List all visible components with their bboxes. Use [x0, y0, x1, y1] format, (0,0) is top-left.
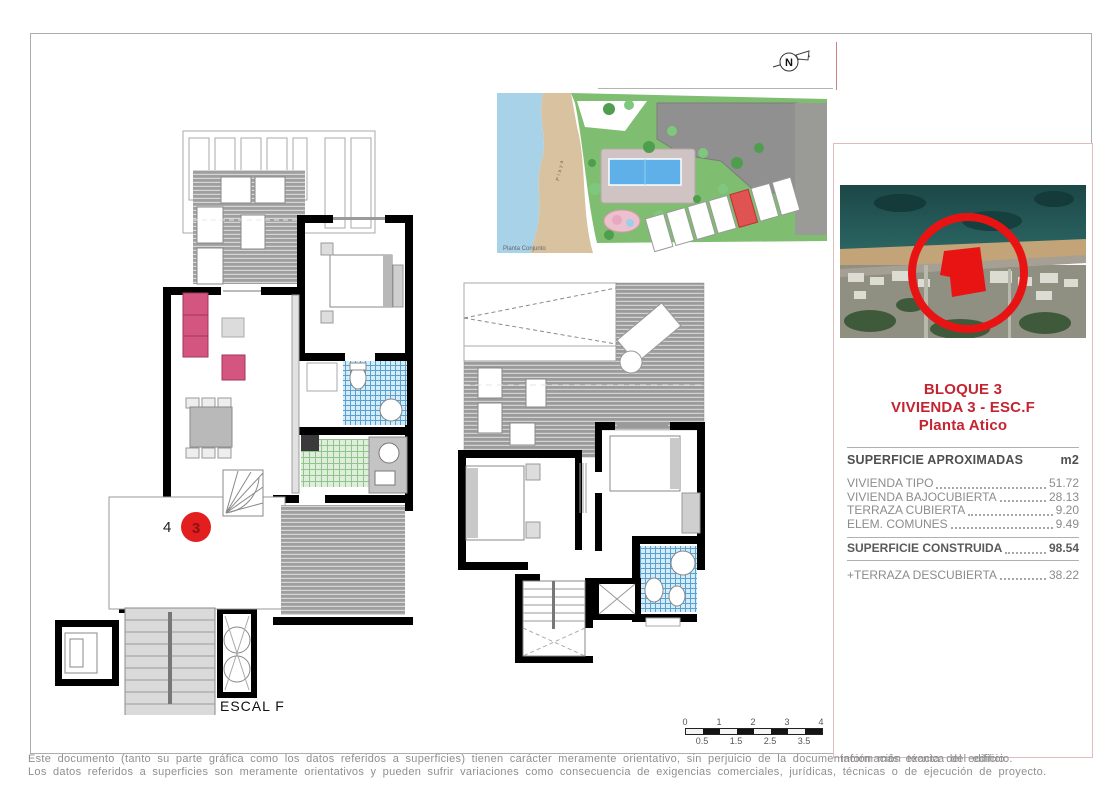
scale-tick: 1.5: [730, 736, 743, 746]
area-row-value: 28.13: [1049, 491, 1079, 505]
site-pond: [604, 210, 640, 232]
site-east-strip: [795, 103, 827, 235]
scale-bar-segments: [685, 728, 823, 735]
attic-pergola: [464, 283, 616, 361]
north-arrow-icon: N: [772, 45, 812, 79]
attic-bedroom-right: [610, 436, 700, 533]
scale-tick: 0.5: [696, 736, 709, 746]
area-row-value: 9.20: [1056, 504, 1079, 518]
scale-tick: 3: [784, 717, 789, 727]
area-extra-row: +TERRAZA DESCUBIERTA 38.22: [847, 569, 1079, 583]
area-row: TERRAZA CUBIERTA 9.20: [847, 504, 1079, 518]
armchair: [222, 355, 245, 380]
stair-label: ESCAL F: [220, 698, 285, 714]
dining-table: [186, 398, 232, 458]
area-extra-label: +TERRAZA DESCUBIERTA: [847, 569, 997, 583]
aerial-photo: [840, 185, 1086, 338]
title-bloque: BLOQUE 3: [834, 381, 1092, 399]
stairwell: [125, 608, 215, 715]
bedroom-main: [321, 243, 403, 323]
attic-bedroom-left: [466, 464, 540, 540]
attic-elevator: [593, 578, 641, 620]
bathroom-main: [307, 361, 407, 425]
scale-tick: 1: [716, 717, 721, 727]
title-planta: Planta Atico: [834, 417, 1092, 435]
disclaimer-line-1: Este documento (tanto su parte gráfica c…: [28, 753, 1090, 766]
attic-stairs: [523, 581, 585, 656]
disclaimer-overlay-text: información técnica del edificio.: [841, 753, 1013, 766]
site-plan-top-rule: [598, 88, 833, 89]
disclaimer-line-2: Los datos referidos a superficies son me…: [28, 766, 1090, 779]
area-extra-value: 38.22: [1049, 569, 1079, 583]
scale-tick: 2.5: [764, 736, 777, 746]
sofa: [183, 293, 208, 357]
scale-tick: 0: [682, 717, 687, 727]
north-letter: N: [785, 57, 793, 69]
areas-header: SUPERFICIE APROXIMADAS m2: [847, 448, 1079, 477]
area-row-label: VIVIENDA TIPO: [847, 477, 933, 491]
scale-tick: 2: [750, 717, 755, 727]
site-plan: Playa: [497, 93, 835, 253]
info-panel: BLOQUE 3 VIVIENDA 3 - ESC.F Planta Atico…: [833, 143, 1093, 758]
unit-marker-number: 3: [192, 520, 200, 537]
site-plan-caption: Planta Conjunto: [503, 246, 546, 252]
title-vivienda: VIVIENDA 3 - ESC.F: [834, 399, 1092, 417]
plan-sheet: 4 3 ESCAL: [0, 0, 1112, 786]
area-row: VIVIENDA TIPO 51.72: [847, 477, 1079, 491]
coffee-table: [222, 318, 244, 337]
area-row-value: 51.72: [1049, 477, 1079, 491]
area-row-label: TERRAZA CUBIERTA: [847, 504, 965, 518]
spiral-stair: [223, 470, 263, 516]
terrace-door: [223, 290, 261, 292]
red-margin-line: [836, 42, 837, 90]
area-row: VIVIENDA BAJOCUBIERTA 28.13: [847, 491, 1079, 505]
floor-plan-main: 4 3 ESCAL: [45, 115, 420, 715]
areas-header-label: SUPERFICIE APROXIMADAS: [847, 453, 1023, 467]
elevator-right: [223, 614, 251, 692]
upper-terrace: [193, 170, 305, 284]
bedroom-window: [333, 217, 385, 220]
area-total-row: SUPERFICIE CONSTRUIDA 98.54: [847, 542, 1079, 556]
site-sea: [497, 93, 544, 253]
area-total-value: 98.54: [1049, 542, 1079, 556]
area-row-label: ELEM. COMUNES: [847, 518, 948, 532]
site-pool: [601, 149, 695, 203]
plan-title-block: BLOQUE 3 VIVIENDA 3 - ESC.F Planta Atico: [834, 381, 1092, 435]
kitchen: [301, 435, 407, 493]
disclaimer-text-2: Los datos referidos a superficies son me…: [28, 766, 1046, 778]
disclaimer: Este documento (tanto su parte gráfica c…: [28, 753, 1090, 779]
area-row-value: 9.49: [1056, 518, 1079, 532]
area-row: ELEM. COMUNES 9.49: [847, 518, 1079, 532]
areas-header-unit: m2: [1061, 453, 1079, 467]
elevator-left: [65, 633, 97, 673]
floor-plan-attic: [450, 278, 712, 663]
area-total-label: SUPERFICIE CONSTRUIDA: [847, 542, 1002, 556]
scale-tick: 4: [818, 717, 823, 727]
areas-table: SUPERFICIE APROXIMADAS m2 VIVIENDA TIPO …: [847, 447, 1079, 582]
lower-terrace: [281, 505, 405, 615]
living-room: [183, 293, 299, 493]
scale-bar: 0 1 2 3 4 0.5 1.5 2.5 3.5: [685, 717, 825, 749]
attic-window: [617, 424, 668, 427]
scale-tick: 3.5: [798, 736, 811, 746]
area-row-label: VIVIENDA BAJOCUBIERTA: [847, 491, 997, 505]
unit-number-label: 4: [163, 519, 171, 536]
